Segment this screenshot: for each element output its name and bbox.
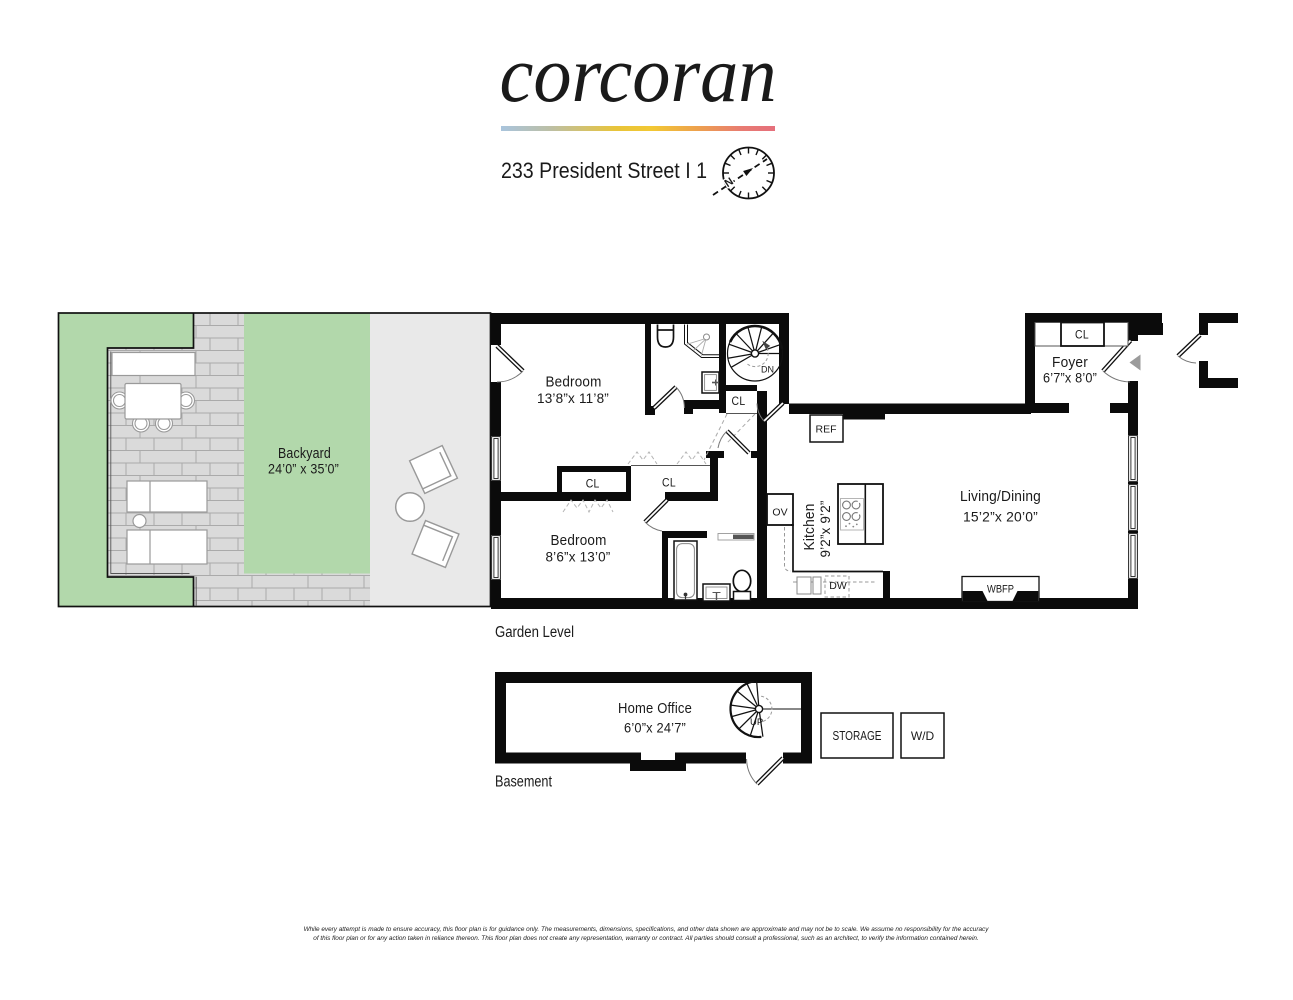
svg-text:Living/Dining: Living/Dining (960, 489, 1041, 505)
svg-text:Garden Level: Garden Level (495, 624, 574, 641)
svg-text:24’0” x 35’0”: 24’0” x 35’0” (268, 462, 339, 478)
svg-text:6’0”x 24’7”: 6’0”x 24’7” (624, 721, 686, 737)
svg-text:233 President Street I 1: 233 President Street I 1 (501, 158, 707, 183)
svg-text:CL: CL (586, 477, 600, 491)
svg-text:8’6”x 13’0”: 8’6”x 13’0” (546, 550, 611, 566)
svg-text:6’7”x 8’0”: 6’7”x 8’0” (1043, 371, 1097, 387)
svg-text:corcoran: corcoran (500, 32, 777, 119)
svg-text:STORAGE: STORAGE (833, 729, 882, 743)
svg-text:of this floor plan or for any: of this floor plan or for any action tak… (313, 935, 978, 942)
svg-text:UP: UP (750, 717, 763, 728)
svg-text:WBFP: WBFP (987, 584, 1014, 596)
svg-text:CL: CL (662, 476, 676, 490)
svg-text:13’8”x 11’8”: 13’8”x 11’8” (537, 391, 609, 407)
svg-text:Bedroom: Bedroom (551, 533, 607, 549)
svg-text:Foyer: Foyer (1052, 355, 1088, 371)
svg-text:CL: CL (732, 394, 746, 408)
svg-text:Home Office: Home Office (618, 701, 692, 717)
svg-text:9’2”x 9’2”: 9’2”x 9’2” (818, 500, 834, 557)
svg-text:15’2”x 20’0”: 15’2”x 20’0” (963, 510, 1038, 526)
svg-text:DW: DW (829, 580, 847, 592)
svg-text:CL: CL (1075, 328, 1089, 342)
svg-text:W/D: W/D (911, 729, 935, 743)
svg-text:OV: OV (772, 507, 787, 519)
svg-text:Kitchen: Kitchen (802, 504, 818, 551)
svg-text:DN: DN (761, 365, 774, 375)
svg-text:Backyard: Backyard (278, 446, 331, 462)
svg-text:While every attempt is made to: While every attempt is made to ensure ac… (304, 926, 990, 933)
svg-text:Bedroom: Bedroom (546, 375, 602, 391)
svg-text:REF: REF (816, 424, 837, 436)
svg-text:Basement: Basement (495, 774, 553, 791)
